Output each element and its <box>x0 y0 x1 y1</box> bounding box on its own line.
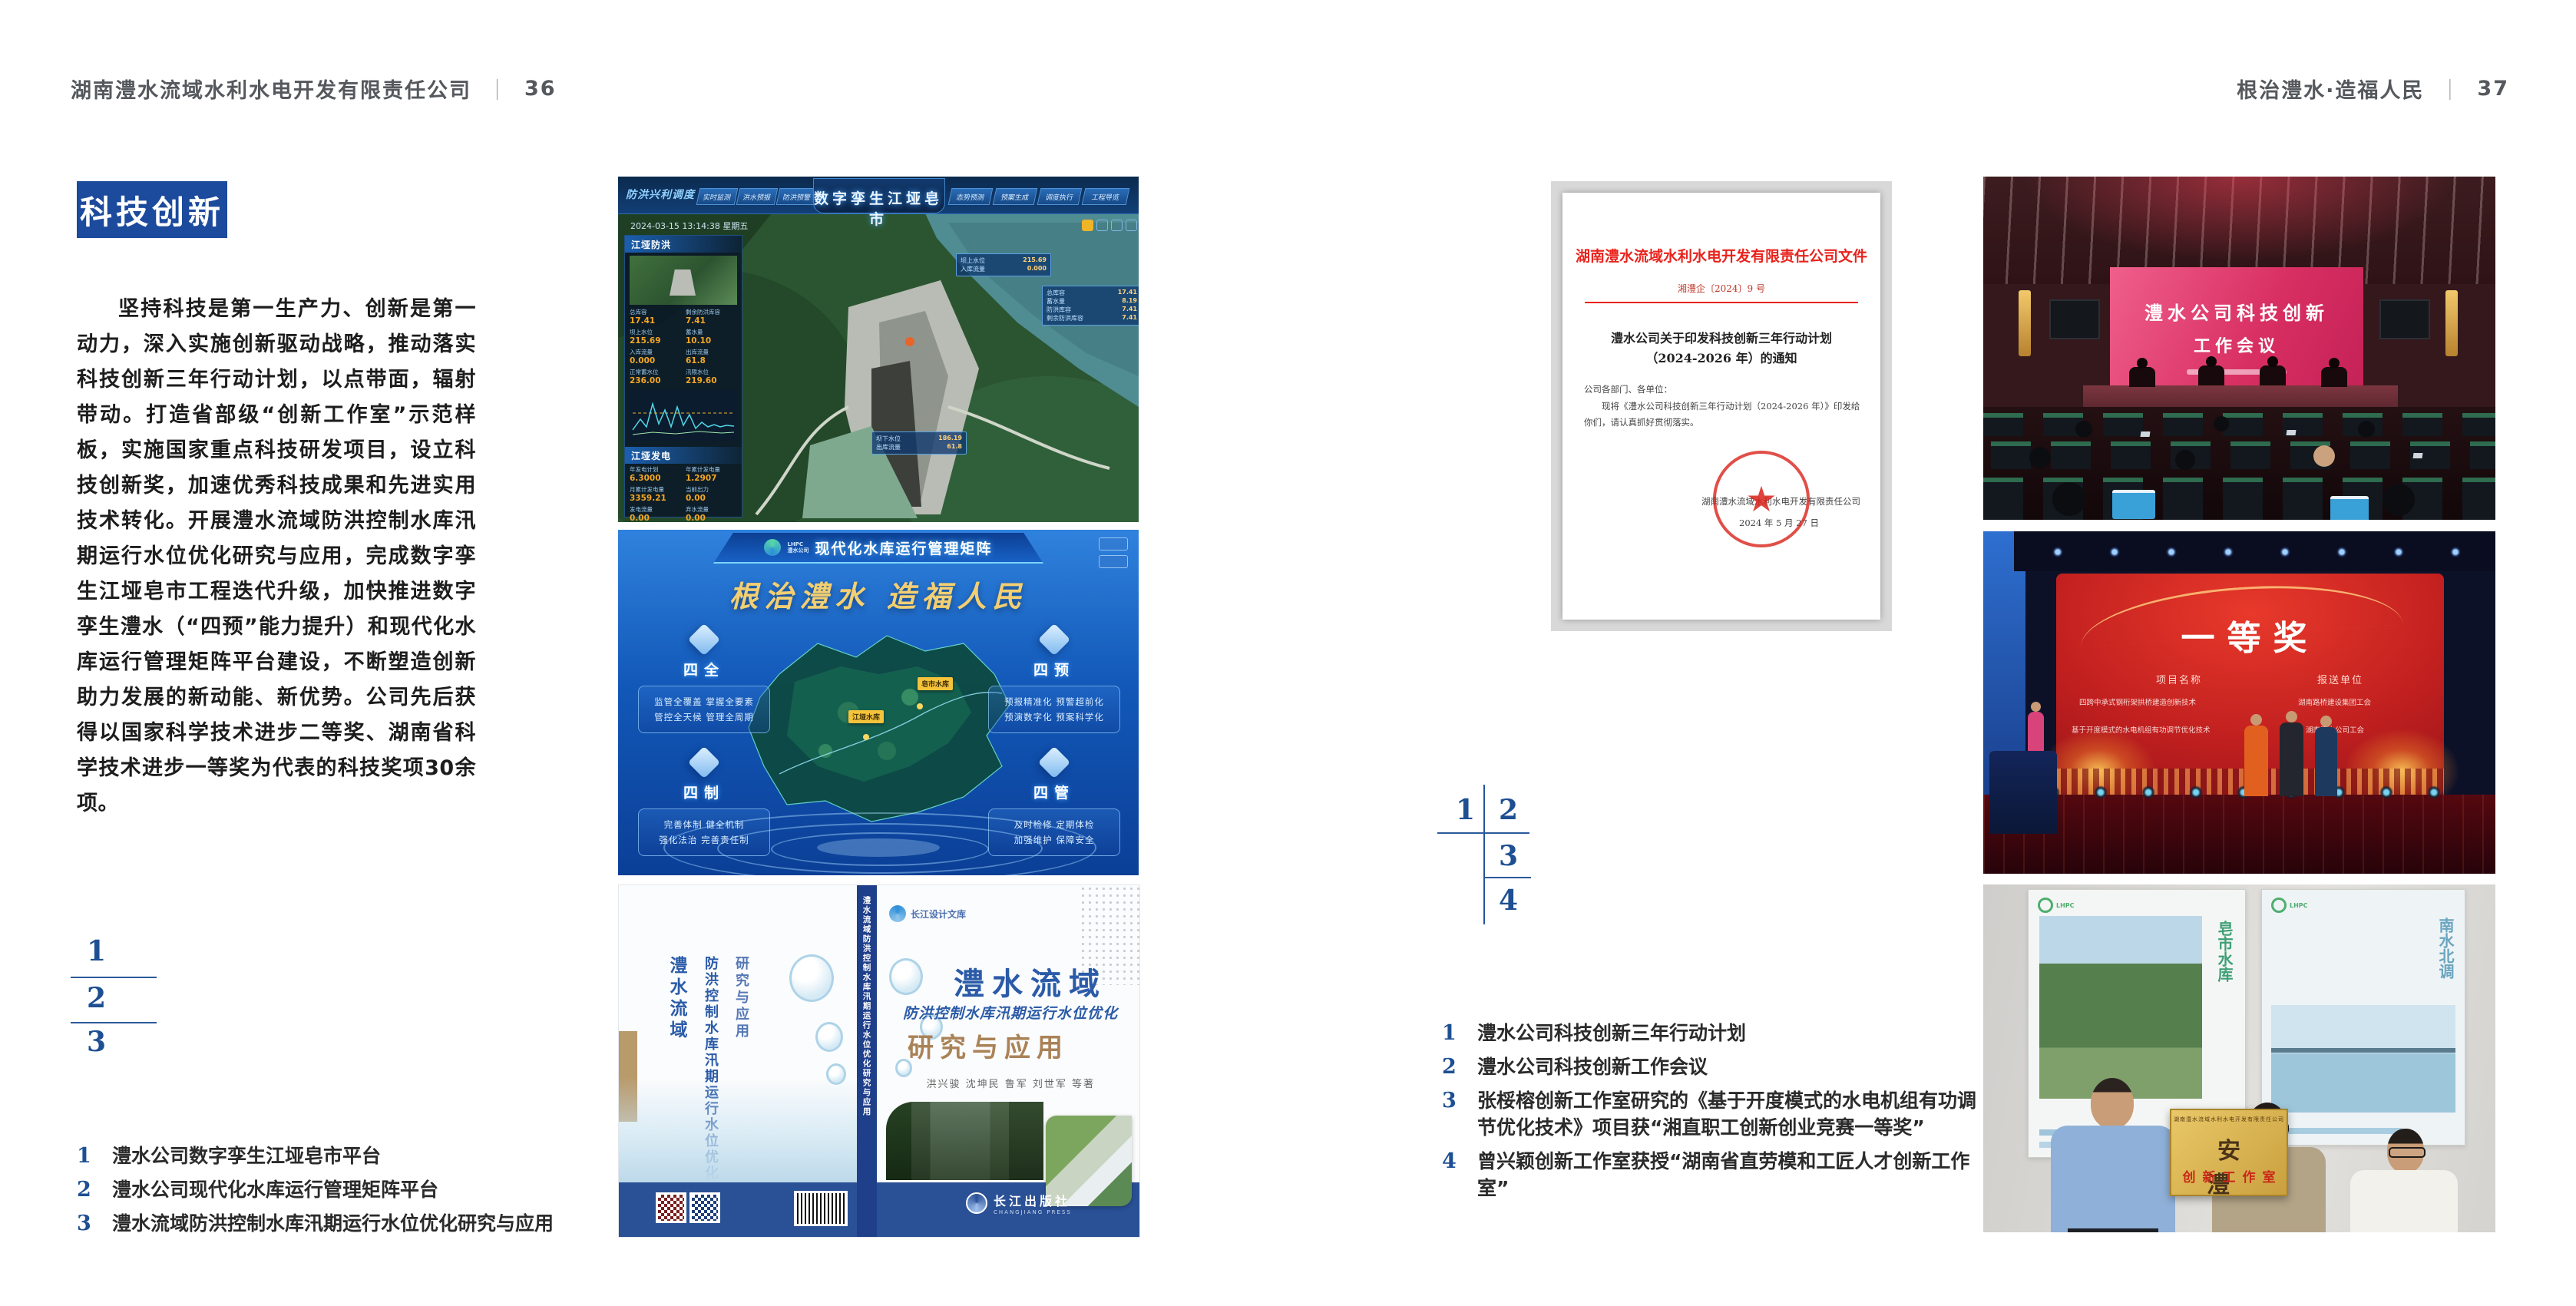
callout-label: 剩余防洪库容 <box>1047 314 1083 322</box>
water-level-minichart <box>630 390 737 441</box>
caption-text: 澧水公司现代化水库运行管理矩阵平台 <box>112 1176 438 1203</box>
quadrant-title: 四预 <box>988 659 1120 679</box>
press-logo-icon <box>889 905 906 922</box>
award-unit-1: 湖南路桥建设集团工会 <box>2298 696 2371 707</box>
stage-lights-truss <box>2014 531 2495 571</box>
attendee-head <box>2075 421 2092 438</box>
forecast-icon <box>1038 623 1070 656</box>
dashboard-title: 数字孪生江垭皂市 <box>813 187 944 229</box>
front-title-tail: 研究与应用 <box>908 1027 1069 1064</box>
quadrant-siyu: 四预 预报精准化 预警超前化 预演数字化 预案科学化 <box>988 628 1120 733</box>
stat-cell: 弃水流量0.00 <box>686 505 737 522</box>
caption-row: 2 澧水公司现代化水库运行管理矩阵平台 <box>77 1176 568 1203</box>
award-ceremony-figure: 一等奖 项目名称 报送单位 四跨中承式钢桁架拱桥建造创新技术 基于开度模式的水电… <box>1983 531 2495 874</box>
stat-value: 10.10 <box>686 336 737 346</box>
red-rule <box>1585 302 1858 303</box>
user-icon <box>1082 220 1093 231</box>
stat-label: 蓄水量 <box>686 328 737 336</box>
plaque-main-text: 安 澧 <box>2171 1132 2287 1199</box>
institution-icon <box>688 746 720 779</box>
meeting-screen-line1: 澧水公司科技创新 <box>2144 298 2329 325</box>
generation-stats-grid: 年发电计划6.3000 年累计发电量1.2907 月累计发电量3359.21 当… <box>630 465 737 522</box>
reservoir-tag-zaoshi: 皂市水库 <box>918 677 953 690</box>
wall-lamp <box>2445 290 2458 356</box>
caption-text: 澧水公司科技创新三年行动计划 <box>1477 1020 1746 1046</box>
stat-label: 当前出力 <box>686 485 737 494</box>
caption-text: 澧水流域防洪控制水库汛期运行水位优化研究与应用 <box>112 1210 554 1237</box>
stat-value: 3359.21 <box>630 494 681 503</box>
stat-cell: 当前出力0.00 <box>686 485 737 503</box>
caption-text: 曾兴颖创新工作室获授“湖南省直劳模和工匠人才创新工作室” <box>1477 1148 1984 1202</box>
stat-value: 215.69 <box>630 336 681 346</box>
caption-number: 1 <box>77 1142 112 1169</box>
spread-motto: 根治澧水·造福人民 <box>2237 74 2424 104</box>
layers-icon <box>1111 220 1123 231</box>
caption-row: 1 澧水公司科技创新三年行动计划 <box>1442 1020 1984 1046</box>
laptop-silhouette <box>2287 430 2297 435</box>
series-badge: 长江设计文库 <box>889 905 966 922</box>
callout-row: 剩余防洪库容7.41 <box>1047 314 1137 322</box>
lhpc-logo: LHPC <box>2271 898 2308 913</box>
caption-number: 1 <box>1442 1020 1477 1046</box>
award-col1-header: 项目名称 <box>2156 672 2202 686</box>
dashboard-toolbar-icons <box>1082 220 1137 231</box>
marker-divider <box>71 1022 157 1023</box>
book-spread: 湖南澧水流域水利水电开发有限责任公司 ｜ 36 科技创新 坚持科技是第一生产力、… <box>0 0 2576 1306</box>
logo-abbr: LHPC <box>787 541 809 547</box>
stat-value: 0.00 <box>630 514 681 522</box>
publisher-name: 长江出版社 <box>994 1191 1072 1209</box>
attendee-head <box>2052 482 2086 516</box>
stat-label: 正常蓄水位 <box>630 368 681 376</box>
callout-label: 坝上水位 <box>961 256 985 265</box>
tab-dispatch-execute: 调度执行 <box>1037 188 1083 205</box>
quadrant-panel: 监管全覆盖 掌握全要素 管控全天候 管理全周期 <box>638 686 770 733</box>
stat-cell: 正常蓄水位236.00 <box>630 368 681 385</box>
document-title-line1: 澧水公司关于印发科技创新三年行动计划 <box>1562 328 1880 346</box>
presenter-silhouette <box>2129 367 2155 387</box>
water-wave-art <box>619 1077 857 1182</box>
close-button-chip <box>1099 537 1128 551</box>
stat-label: 剩余防洪库容 <box>686 308 737 316</box>
caption-row: 3 澧水流域防洪控制水库汛期运行水位优化研究与应用 <box>77 1210 568 1237</box>
callout-row: 出库流量61.8 <box>876 443 962 451</box>
quadrant-line: 监管全覆盖 掌握全要素 <box>645 694 763 709</box>
spine-title: 澧水流域防洪控制水库汛期运行水位优化研究与应用 <box>861 896 873 1237</box>
quadrant-siquan: 四全 监管全覆盖 掌握全要素 管控全天候 管理全周期 <box>638 628 770 733</box>
callout-downstream: 坝下水位186.19 出库流量61.8 <box>871 431 967 455</box>
tissue-box <box>2330 496 2369 520</box>
caption-row: 1 澧水公司数字孪生江垭皂市平台 <box>77 1142 568 1169</box>
stat-label: 汛限水位 <box>686 368 737 376</box>
innovation-studio-plaque: 湖南澧水流域水利水电开发有限责任公司 安 澧 创新工作室 <box>2170 1109 2288 1196</box>
callout-capacity: 总库容17.41 蓄水量8.19 防洪库容7.41 剩余防洪库容7.41 <box>1042 286 1139 326</box>
callout-value: 17.41 <box>1118 289 1137 297</box>
caption-text: 澧水公司数字孪生江垭皂市平台 <box>112 1142 381 1169</box>
plaque-photo-figure: LHPC 皂市水库 LHPC 南水北调 湖 <box>1983 884 2495 1232</box>
qr-code <box>656 1192 686 1223</box>
callout-label: 入库流量 <box>961 265 985 273</box>
wall-poster-right: LHPC 南水北调 <box>2261 889 2465 1146</box>
stat-cell: 蓄水量10.10 <box>686 328 737 346</box>
stat-label: 坝上水位 <box>630 328 681 336</box>
callout-row: 坝上水位215.69 <box>961 256 1047 265</box>
marker-divider <box>1437 832 1529 834</box>
stat-value: 0.00 <box>686 494 737 503</box>
figure-marker-1: 1 <box>1456 794 1475 826</box>
stat-label: 弃水流量 <box>686 505 737 514</box>
meeting-photo-figure: 澧水公司科技创新 工作会议 <box>1983 177 2495 520</box>
callout-label: 防洪库容 <box>1047 306 1071 314</box>
figure-marker-3: 3 <box>1499 840 1518 872</box>
chair-row <box>1983 413 2495 436</box>
publisher-name-en: CHANGJIANG PRESS <box>994 1209 1072 1215</box>
caption-number: 3 <box>1442 1087 1477 1141</box>
watershed-map-art <box>733 620 1025 829</box>
stat-value: 0.00 <box>686 514 737 522</box>
publisher-logo-icon <box>966 1192 987 1214</box>
stat-value: 61.8 <box>686 356 737 365</box>
dam-thumbnail <box>630 256 737 305</box>
stat-cell: 坝上水位215.69 <box>630 328 681 346</box>
stat-cell: 月累计发电量3359.21 <box>630 485 681 503</box>
section-title: 科技创新 <box>77 181 227 238</box>
callout-value: 186.19 <box>938 435 962 443</box>
platform-header: LHPC 澧水公司 现代化水库运行管理矩阵 <box>713 533 1043 564</box>
stat-cell: 汛限水位219.60 <box>686 368 737 385</box>
document-letterhead: 湖南澧水流域水利水电开发有限责任公司文件 <box>1562 245 1880 266</box>
quadrant-title: 四制 <box>638 782 770 802</box>
caption-row: 2 澧水公司科技创新工作会议 <box>1442 1053 1984 1080</box>
stat-value: 7.41 <box>686 316 737 326</box>
quadrant-line: 预演数字化 预案科学化 <box>995 709 1113 725</box>
platform-title: 现代化水库运行管理矩阵 <box>815 537 992 558</box>
caption-row: 4 曾兴颖创新工作室获授“湖南省直劳模和工匠人才创新工作室” <box>1442 1148 1984 1202</box>
monitor-icon <box>688 623 720 656</box>
meeting-screen-line2: 工作会议 <box>2194 332 2280 357</box>
callout-label: 蓄水量 <box>1047 297 1065 306</box>
host-podium <box>1989 751 2057 834</box>
logo-text: LHPC 澧水公司 <box>787 541 809 554</box>
attendee-head <box>2313 445 2335 467</box>
stat-value: 219.60 <box>686 376 737 385</box>
stat-cell: 出库流量61.8 <box>686 348 737 365</box>
callout-row: 总库容17.41 <box>1047 289 1137 297</box>
back-button-chip <box>1099 555 1128 568</box>
figure-marker-1: 1 <box>87 935 106 967</box>
poster-photo-bridge <box>2271 1005 2455 1113</box>
document-body: 现将《澧水公司科技创新三年行动计划（2024-2026 年）》印发给你们，请认真… <box>1584 398 1862 431</box>
logo-name: 澧水公司 <box>787 547 809 554</box>
page-number-right: 37 <box>2477 77 2509 101</box>
callout-value: 0.000 <box>1027 265 1047 273</box>
stat-value: 1.2907 <box>686 474 737 483</box>
caption-text: 澧水公司科技创新工作会议 <box>1477 1053 1708 1080</box>
quadrant-line: 管控全天候 管理全周期 <box>645 709 763 725</box>
stat-label: 年累计发电量 <box>686 465 737 474</box>
tab-flood-warning: 防洪预警 <box>776 188 818 205</box>
poster-photo-mountains <box>2039 916 2202 1099</box>
callout-row: 防洪库容7.41 <box>1047 306 1137 314</box>
dashboard-datetime: 2024-03-15 13:14:38 星期五 <box>630 220 748 232</box>
attendee-head <box>2383 484 2415 516</box>
award-col2-header: 报送单位 <box>2317 672 2363 686</box>
quadrant-line: 预报精准化 预警超前化 <box>995 694 1113 709</box>
attendee-head <box>2029 447 2051 468</box>
attendee-head <box>2358 421 2375 438</box>
ripple-core <box>817 838 940 857</box>
lhpc-logo: LHPC <box>2038 898 2075 913</box>
caption-number: 3 <box>77 1210 112 1237</box>
company-name: 湖南澧水流域水利水电开发有限责任公司 <box>71 74 471 104</box>
series-badge-text: 长江设计文库 <box>911 908 966 921</box>
dashboard-corner-label: 防洪兴利调度 <box>626 187 695 202</box>
figure-marker-4: 4 <box>1499 884 1518 917</box>
presenter-silhouette <box>2260 365 2286 385</box>
wall-lamp <box>2019 290 2031 356</box>
callout-label: 出库流量 <box>876 443 901 451</box>
platform-slogan: 根治澧水 造福人民 <box>618 573 1139 615</box>
document-number: 湘澧企〔2024〕9 号 <box>1562 282 1880 295</box>
quadrant-title: 四管 <box>988 782 1120 802</box>
callout-label: 总库容 <box>1047 289 1065 297</box>
stat-value: 0.000 <box>630 356 681 365</box>
callout-value: 7.41 <box>1122 306 1137 314</box>
bridge-deck-art <box>2271 1048 2455 1053</box>
body-paragraph: 坚持科技是第一生产力、创新是第一动力，深入实施创新驱动战略，推动落实科技创新三年… <box>77 292 476 822</box>
marker-divider <box>1483 877 1531 878</box>
caption-row: 3 张桵榕创新工作室研究的《基于开度模式的水电机组有功调节优化技术》项目获“湘直… <box>1442 1087 1984 1141</box>
document-paper: 湖南澧水流域水利水电开发有限责任公司文件 湘澧企〔2024〕9 号 澧水公司关于… <box>1562 193 1880 620</box>
official-document-figure: 湖南澧水流域水利水电开发有限责任公司文件 湘澧企〔2024〕9 号 澧水公司关于… <box>1551 181 1892 631</box>
dashboard-left-panel: 江垭防洪 总库容17.41 剩余防洪库容7.41 坝上水位215.69 蓄水量1… <box>624 235 742 517</box>
stat-label: 入库流量 <box>630 348 681 356</box>
callout-value: 215.69 <box>1023 256 1047 265</box>
caption-number: 4 <box>1442 1148 1477 1202</box>
plaque-sub-text: 创新工作室 <box>2171 1166 2287 1185</box>
water-droplet <box>789 954 834 1002</box>
laptop-silhouette <box>2413 453 2423 458</box>
attendee-head <box>2214 416 2229 431</box>
right-captions: 1 澧水公司科技创新三年行动计划 2 澧水公司科技创新工作会议 3 张桵榕创新工… <box>1442 1020 1984 1208</box>
document-title-line2: （2024-2026 年）的通知 <box>1562 348 1880 366</box>
barcode <box>794 1191 848 1226</box>
management-matrix-figure: LHPC 澧水公司 现代化水库运行管理矩阵 根治澧水 造福人民 皂市水库 江垭水… <box>618 530 1139 875</box>
callout-row: 蓄水量8.19 <box>1047 297 1137 306</box>
flood-stats-grid: 总库容17.41 剩余防洪库容7.41 坝上水位215.69 蓄水量10.10 … <box>630 308 737 385</box>
reservoir-tag-jiangya: 江垭水库 <box>848 710 884 723</box>
right-page-header: 根治澧水·造福人民 ｜ 37 <box>2237 74 2509 104</box>
left-page-header: 湖南澧水流域水利水电开发有限责任公司 ｜ 36 <box>71 74 557 104</box>
stat-label: 年发电计划 <box>630 465 681 474</box>
maintenance-icon <box>1038 746 1070 779</box>
callout-upstream: 坝上水位215.69 入库流量0.000 <box>956 253 1051 276</box>
publisher-block: 长江出版社 CHANGJIANG PRESS <box>966 1191 1072 1215</box>
stat-cell: 年发电计划6.3000 <box>630 465 681 483</box>
poster-slogan-bar <box>2271 1128 2402 1134</box>
tab-project-tour: 工程导览 <box>1082 188 1130 205</box>
panel-flood-title: 江垭防洪 <box>625 236 742 253</box>
stat-value: 17.41 <box>630 316 681 326</box>
figure-marker-2: 2 <box>87 982 106 1014</box>
stat-cell: 总库容17.41 <box>630 308 681 326</box>
presenter-silhouette <box>2198 365 2224 385</box>
lhpc-logo-icon <box>764 539 781 556</box>
stat-cell: 剩余防洪库容7.41 <box>686 308 737 326</box>
stat-label: 月累计发电量 <box>630 485 681 494</box>
front-title-main: 澧水流域 <box>954 959 1107 1003</box>
callout-value: 8.19 <box>1122 297 1137 306</box>
stat-cell: 入库流量0.000 <box>630 348 681 365</box>
award-title: 一等奖 <box>2056 610 2444 660</box>
plaque-org-line: 湖南澧水流域水利水电开发有限责任公司 <box>2171 1116 2287 1123</box>
stat-cell: 年累计发电量1.2907 <box>686 465 737 483</box>
marker-vertical-line <box>1483 785 1485 924</box>
award-project-1: 四跨中承式钢桁架拱桥建造创新技术 <box>2079 696 2196 707</box>
book-cover-figure: 澧水流域 防洪控制水库汛期运行水位优化 研究与应用 澧水流域防洪控制水库汛期运行… <box>618 884 1140 1238</box>
figure-marker-3: 3 <box>87 1026 106 1058</box>
side-monitor <box>2049 299 2100 339</box>
water-droplet <box>889 958 923 995</box>
callout-label: 坝下水位 <box>876 435 901 443</box>
stat-label: 出库流量 <box>686 348 737 356</box>
qr-code <box>689 1192 720 1223</box>
callout-row: 入库流量0.000 <box>961 265 1047 273</box>
stage-floor <box>1983 795 2495 874</box>
caption-number: 2 <box>77 1176 112 1203</box>
stat-label: 总库容 <box>630 308 681 316</box>
tissue-box <box>2112 490 2155 519</box>
stat-cell: 发电流量0.00 <box>630 505 681 522</box>
caption-number: 2 <box>1442 1053 1477 1080</box>
front-title-sub: 防洪控制水库汛期运行水位优化 <box>903 1002 1118 1023</box>
header-divider: ｜ <box>2439 74 2462 104</box>
quadrant-title: 四全 <box>638 659 770 679</box>
dam-canyon-photo <box>886 1102 1043 1180</box>
tab-plan-generate: 预案生成 <box>993 188 1038 205</box>
book-spine: 澧水流域防洪控制水库汛期运行水位优化研究与应用 <box>857 885 877 1237</box>
tab-flood-forecast: 洪水预报 <box>736 188 779 205</box>
callout-row: 坝下水位186.19 <box>876 435 962 443</box>
platform-buttons <box>1099 537 1128 568</box>
settings-icon <box>1126 220 1137 231</box>
stat-value: 6.3000 <box>630 474 681 483</box>
side-monitor <box>2379 299 2430 339</box>
stat-value: 236.00 <box>630 376 681 385</box>
figure-marker-2: 2 <box>1499 794 1518 826</box>
authors-line: 洪兴骏 沈坤民 鲁军 刘世军 等著 <box>926 1076 1095 1090</box>
water-droplet <box>815 1022 843 1052</box>
tab-realtime-monitor: 实时监测 <box>696 188 739 205</box>
caption-text: 张桵榕创新工作室研究的《基于开度模式的水电机组有功调节优化技术》项目获“湘直职工… <box>1477 1087 1984 1141</box>
marker-divider <box>71 977 157 978</box>
official-seal <box>1713 451 1810 547</box>
header-divider: ｜ <box>487 74 509 104</box>
tab-situation-forecast: 态势预测 <box>948 188 994 205</box>
panel-generation-title: 江垭发电 <box>625 447 742 464</box>
glasses-icon <box>2389 1147 2426 1158</box>
callout-value: 7.41 <box>1122 314 1137 322</box>
poster-left-title: 皂市水库 <box>2214 921 2236 982</box>
presenter-silhouette <box>2321 367 2347 387</box>
panel-icon <box>1096 220 1108 231</box>
document-salutation: 公司各部门、各单位： <box>1584 382 1672 398</box>
poster-right-title: 南水北调 <box>2435 918 2457 979</box>
left-captions: 1 澧水公司数字孪生江垭皂市平台 2 澧水公司现代化水库运行管理矩阵平台 3 澧… <box>77 1142 568 1244</box>
attendee-head <box>2175 450 2195 470</box>
callout-value: 61.8 <box>947 443 962 451</box>
laptop-silhouette <box>2141 431 2151 437</box>
stat-label: 发电流量 <box>630 505 681 514</box>
digital-twin-dashboard-figure: 防洪兴利调度 实时监测 洪水预报 防洪预警 数字孪生江垭皂市 态势预测 预案生成… <box>618 177 1139 522</box>
page-number-left: 36 <box>524 77 557 101</box>
quadrant-panel: 预报精准化 预警超前化 预演数字化 预案科学化 <box>988 686 1120 733</box>
